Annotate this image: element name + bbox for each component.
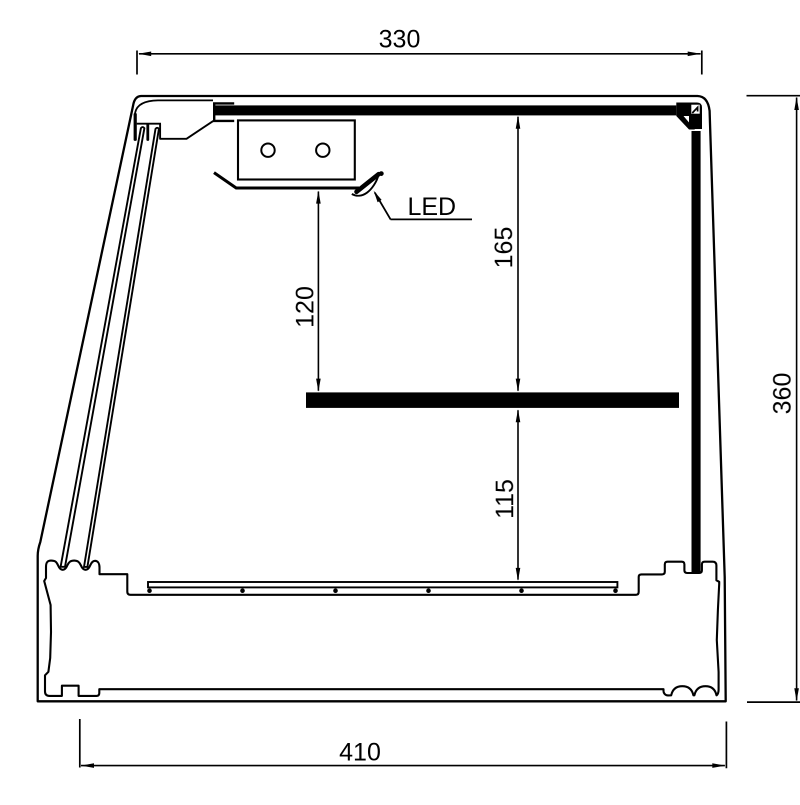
svg-text:120: 120 — [291, 286, 319, 328]
svg-text:360: 360 — [769, 373, 797, 415]
svg-text:LED: LED — [407, 193, 456, 221]
svg-text:330: 330 — [379, 26, 421, 54]
svg-text:410: 410 — [339, 738, 381, 766]
svg-text:115: 115 — [491, 479, 519, 519]
svg-text:165: 165 — [490, 227, 518, 269]
